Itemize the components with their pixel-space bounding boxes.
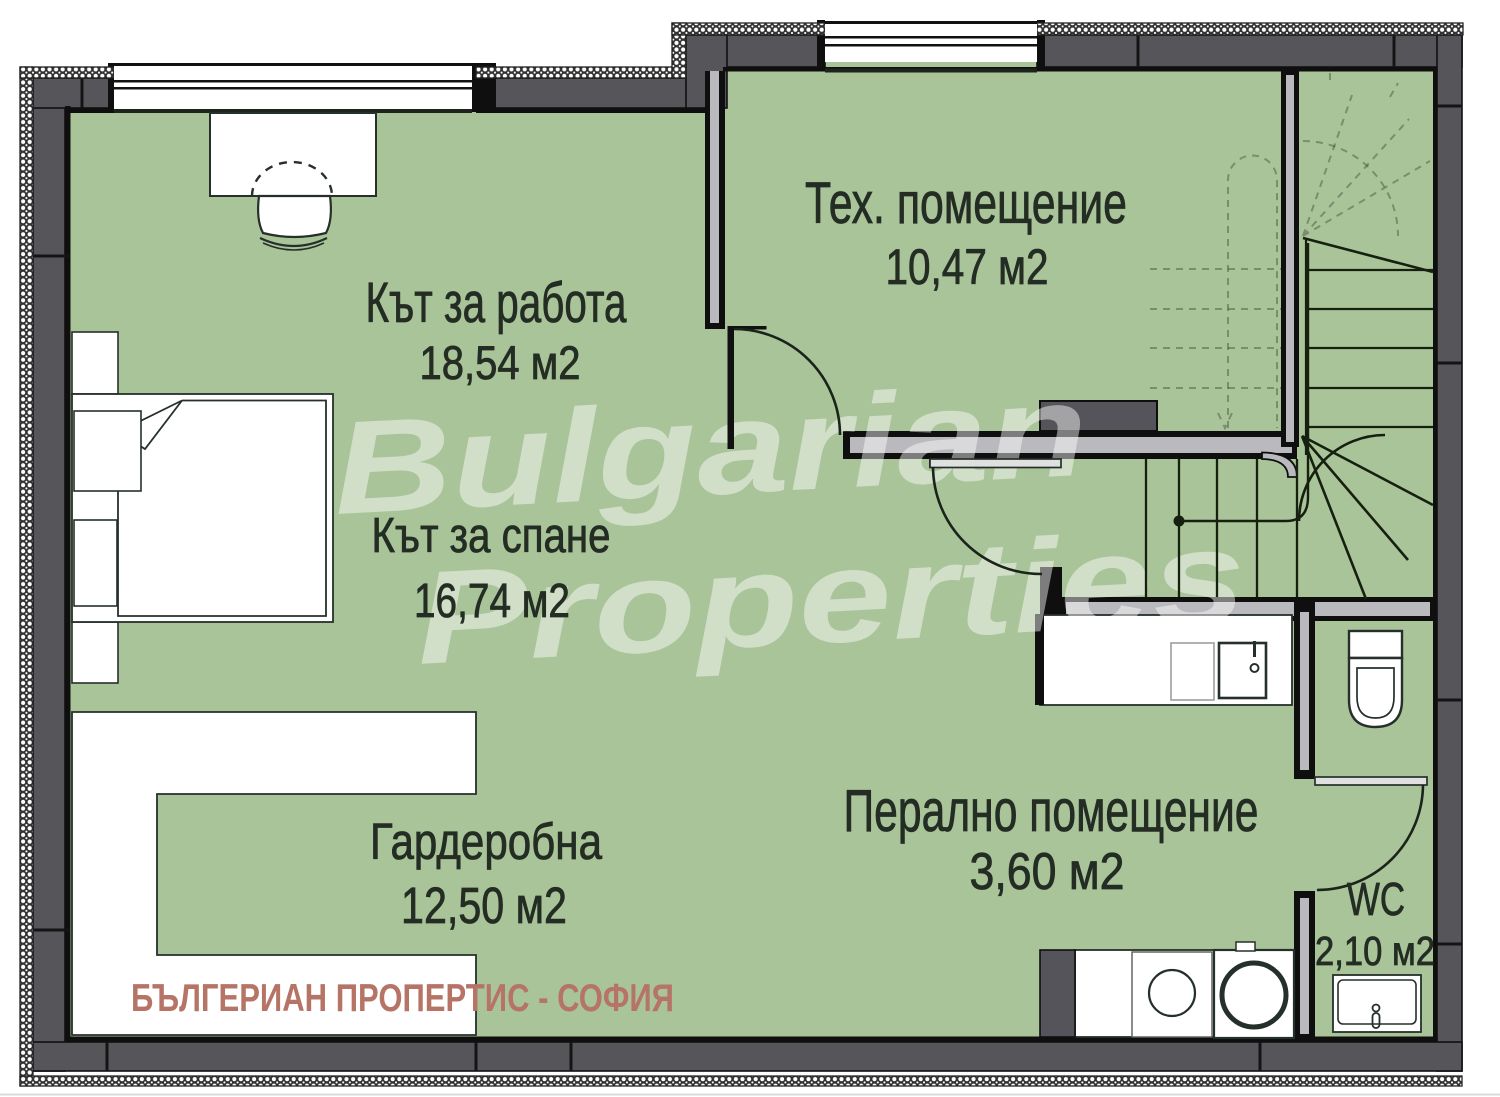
svg-text:Гардеробна: Гардеробна: [370, 813, 603, 870]
svg-text:Перално помещение: Перално помещение: [844, 778, 1259, 844]
svg-text:10,47 м2: 10,47 м2: [886, 239, 1049, 295]
svg-text:18,54 м2: 18,54 м2: [420, 336, 581, 389]
svg-text:12,50 м2: 12,50 м2: [401, 877, 567, 934]
svg-text:2,10 м2: 2,10 м2: [1315, 928, 1435, 974]
svg-text:Тех. помещение: Тех. помещение: [805, 171, 1127, 236]
svg-text:БЪЛГЕРИАН ПРОПЕРТИС - СОФИЯ: БЪЛГЕРИАН ПРОПЕРТИС - СОФИЯ: [131, 977, 674, 1020]
svg-text:WC: WC: [1347, 873, 1405, 925]
svg-text:16,74 м2: 16,74 м2: [414, 575, 570, 628]
svg-text:Кът за работа: Кът за работа: [366, 271, 627, 335]
svg-text:Кът за спане: Кът за спане: [372, 509, 611, 563]
svg-text:3,60 м2: 3,60 м2: [970, 843, 1125, 901]
